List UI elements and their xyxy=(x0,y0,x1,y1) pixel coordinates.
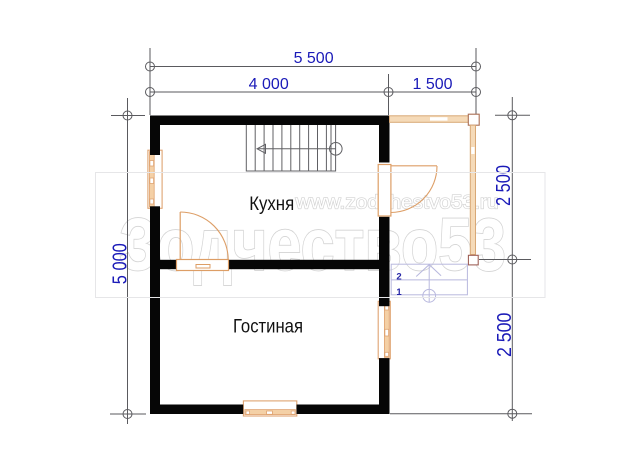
svg-text:Зодчество53: Зодчество53 xyxy=(119,203,506,286)
svg-text:2 500: 2 500 xyxy=(494,313,516,358)
svg-text:Гостиная: Гостиная xyxy=(233,316,303,338)
svg-text:2: 2 xyxy=(396,272,401,283)
svg-text:1 500: 1 500 xyxy=(412,76,452,93)
svg-text:5 000: 5 000 xyxy=(110,243,132,284)
svg-text:Кухня: Кухня xyxy=(249,193,294,215)
svg-text:4 000: 4 000 xyxy=(249,76,289,93)
svg-text:1: 1 xyxy=(396,287,402,298)
svg-text:2 500: 2 500 xyxy=(493,165,515,206)
svg-text:5 500: 5 500 xyxy=(294,50,334,67)
